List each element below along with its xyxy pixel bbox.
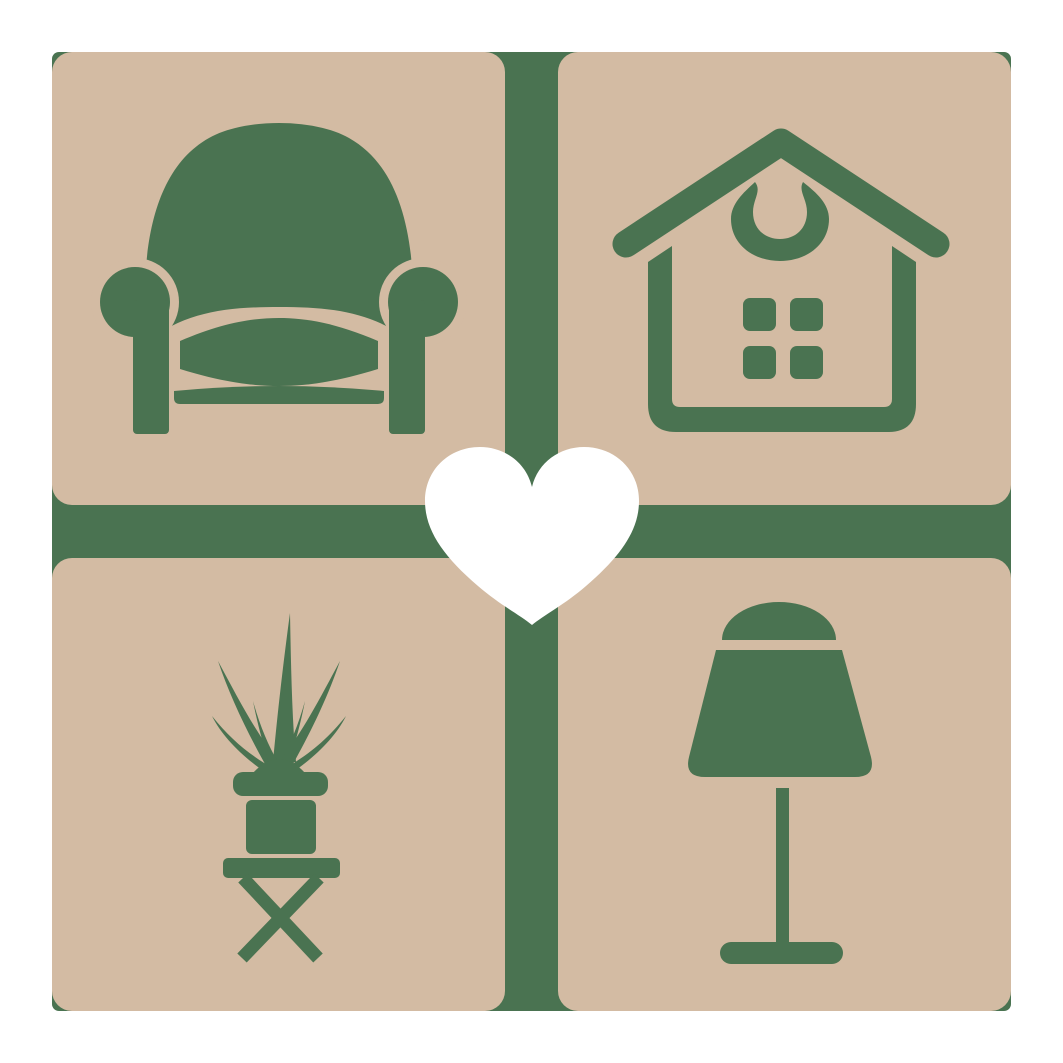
lamp-base xyxy=(720,942,843,964)
armchair-right-leg xyxy=(389,300,425,434)
armchair-front-rail xyxy=(174,386,384,404)
plant-pot-rim xyxy=(233,772,328,796)
plant-pot-body xyxy=(246,800,316,854)
tile-top-right-house xyxy=(558,52,1011,505)
furniture-logo xyxy=(0,0,1063,1063)
house-window-top-right xyxy=(790,298,823,331)
house-window-bottom-right xyxy=(790,346,823,379)
house-window-top-left xyxy=(743,298,776,331)
logo-canvas xyxy=(0,0,1063,1063)
lamp-stem xyxy=(776,788,789,945)
lamp-shade xyxy=(688,650,872,777)
house-window-bottom-left xyxy=(743,346,776,379)
armchair-left-leg xyxy=(133,300,169,434)
stool-top xyxy=(223,858,340,878)
